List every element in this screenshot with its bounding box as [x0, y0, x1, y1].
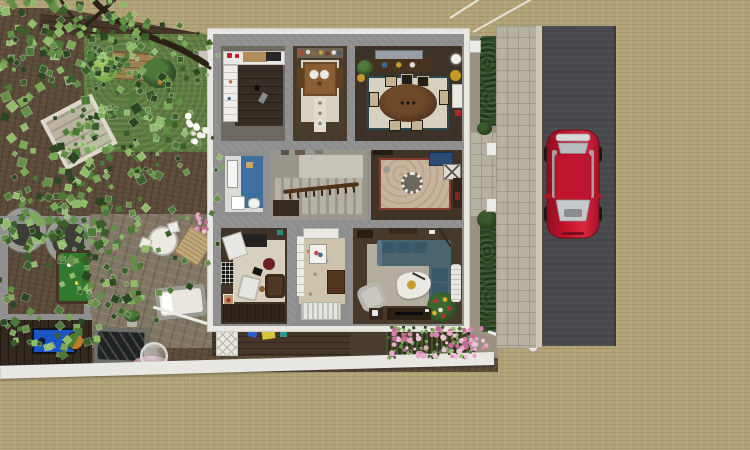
teal-wall-item[interactable]	[277, 230, 283, 235]
french-window-strip	[297, 236, 304, 296]
light-green-bush[interactable]	[92, 56, 118, 82]
towel-shelf[interactable]	[246, 162, 253, 168]
room-stair-hall	[271, 150, 367, 220]
room-living	[353, 228, 462, 324]
room-study	[221, 228, 287, 324]
power-line	[449, 0, 479, 19]
sideboard[interactable]	[369, 59, 431, 72]
gold-drum-stool[interactable]	[450, 70, 461, 81]
palm-pot	[357, 74, 365, 82]
room-dining	[355, 46, 462, 141]
table-decor-stick	[412, 272, 425, 280]
outdoor-pool-table[interactable]	[56, 250, 94, 304]
sofa-cushion	[380, 242, 395, 253]
burgundy-pouf[interactable]	[263, 258, 275, 270]
pendant-lamp[interactable]	[254, 85, 260, 91]
sphere-floor-lamp[interactable]	[451, 54, 461, 64]
white-cabinet[interactable]	[452, 84, 462, 108]
dining-chair[interactable]	[369, 92, 379, 107]
door-lintel	[373, 150, 393, 155]
potted-plant[interactable]	[124, 310, 140, 328]
runner-rug	[314, 98, 326, 132]
soundbar-slot	[395, 312, 423, 315]
picture-frame[interactable]	[281, 150, 289, 155]
red-toaster[interactable]	[235, 54, 239, 58]
oval-dining-table[interactable]	[379, 84, 437, 122]
sofa-armrest	[377, 240, 382, 266]
teddy-bear[interactable]	[259, 286, 265, 292]
wood-counter	[243, 52, 267, 62]
gate-bush[interactable]	[477, 122, 492, 135]
white-chaise[interactable]	[451, 264, 461, 302]
sofa-cushion	[432, 268, 448, 282]
dark-bush-orange-berries[interactable]	[142, 58, 176, 88]
dining-chair[interactable]	[389, 120, 401, 131]
study-floor-band	[223, 304, 285, 322]
toilet[interactable]	[248, 198, 260, 209]
red-kettle[interactable]	[227, 53, 232, 58]
sofa-cushion	[412, 242, 427, 253]
sink[interactable]	[231, 196, 245, 210]
red-car[interactable]	[544, 128, 602, 240]
house	[207, 28, 470, 332]
red-accent-item[interactable]	[455, 192, 460, 200]
car-rear-window	[558, 143, 588, 155]
sidewalk	[496, 26, 536, 348]
chair[interactable]	[297, 68, 304, 88]
house-interior-walls	[213, 34, 464, 326]
room-bathroom	[221, 152, 267, 216]
cooktop[interactable]	[266, 52, 281, 61]
chair[interactable]	[336, 68, 343, 88]
red-item[interactable]	[455, 110, 461, 116]
barrel[interactable]	[66, 332, 84, 350]
picture-frame[interactable]	[315, 150, 323, 154]
espresso-side-table[interactable]	[369, 308, 383, 320]
sofa-cushion	[396, 242, 411, 253]
dining-chair[interactable]	[439, 90, 449, 105]
rug-medallion	[401, 172, 423, 194]
door-opening	[303, 228, 339, 239]
dresser[interactable]	[327, 270, 345, 294]
wall-shelf-jars[interactable]	[297, 48, 343, 58]
pool-ball	[75, 281, 79, 285]
car-dashboard	[564, 209, 582, 217]
room-mud	[295, 228, 349, 324]
lattice-skirt	[216, 328, 238, 356]
radiator[interactable]	[301, 302, 341, 320]
kitchen-floor	[235, 62, 283, 126]
wall-tag	[429, 230, 435, 234]
gate-bush[interactable]	[477, 210, 498, 229]
flower-picture[interactable]	[309, 244, 327, 264]
wood-table[interactable]	[303, 62, 337, 96]
mirror[interactable]	[227, 160, 238, 188]
car-grille	[562, 232, 584, 235]
pool-ball	[67, 263, 71, 267]
car-trunk-trim	[556, 134, 590, 141]
gold-tray	[406, 280, 416, 290]
remote	[425, 309, 429, 312]
room-kitchen	[221, 46, 285, 141]
trellis-window	[221, 262, 234, 284]
lower-floor-patch	[273, 200, 299, 216]
aerial-lot-view	[0, 0, 750, 450]
car-roof	[555, 154, 591, 200]
room-entry-hall	[371, 150, 462, 220]
door-lintel	[389, 228, 417, 234]
brown-armchair[interactable]	[265, 274, 285, 298]
ceiling-lamp	[383, 166, 390, 173]
corner-cabinet[interactable]	[357, 230, 373, 238]
fridge-pantry-unit[interactable]	[223, 64, 238, 122]
espresso-machine	[372, 310, 378, 316]
room-breakfast	[293, 46, 347, 141]
media-console[interactable]	[387, 308, 431, 320]
plant-leaves	[124, 310, 140, 322]
